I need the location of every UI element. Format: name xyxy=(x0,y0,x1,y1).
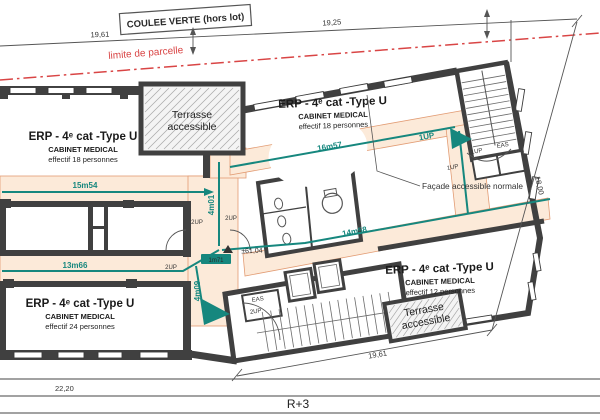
evac-dim-4m01: 4m01 xyxy=(207,194,216,215)
eas-room-bottom xyxy=(242,290,282,321)
column xyxy=(123,200,134,208)
column xyxy=(3,279,14,288)
windows-top-left xyxy=(10,88,112,94)
unit-tl-title: ERP - 4ᵉ cat -Type U xyxy=(29,131,138,143)
elevator-2 xyxy=(314,260,344,293)
terrace-top-line1: Terrasse xyxy=(172,109,212,121)
door-2up-b: 2UP xyxy=(225,216,237,222)
unit-tr-title: ERP - 4ᵉ cat -Type U xyxy=(278,95,387,111)
terrace-top: Terrasse accessible xyxy=(141,84,243,153)
dim-bottom-right: 19,61 xyxy=(368,348,388,360)
unit-bl-title: ERP - 4ᵉ cat -Type U xyxy=(26,298,135,310)
tick-arrow xyxy=(190,47,196,55)
title-band: 22,20 R+3 xyxy=(0,379,600,413)
rooms-middle-row xyxy=(0,199,191,257)
column xyxy=(126,279,137,288)
evac-dim-15m54: 15m54 xyxy=(73,181,98,190)
parcel-limit-label: limite de parcelle xyxy=(108,45,184,62)
unit-tl-category: CABINET MEDICAL xyxy=(48,145,118,154)
unit-top-left-label: ERP - 4ᵉ cat -Type U CABINET MEDICAL eff… xyxy=(29,131,138,164)
column xyxy=(0,199,11,208)
pilaster xyxy=(0,94,8,99)
unit-bl-occupancy: effectif 24 personnes xyxy=(45,322,115,331)
dimension-top: 19,61 19,25 xyxy=(0,9,577,62)
dim-line-top xyxy=(0,19,577,46)
wall-stub xyxy=(203,153,210,178)
dim-top-left: 19,61 xyxy=(90,30,109,40)
terrace-top-line2: accessible xyxy=(167,121,216,133)
evac-height-label: 1m71 xyxy=(208,258,224,264)
evac-dim-13m66: 13m66 xyxy=(63,261,88,270)
level-title: R+3 xyxy=(287,397,310,411)
unit-bl-category: CABINET MEDICAL xyxy=(45,312,115,321)
tick-arrow xyxy=(484,31,490,39)
dim-bottom-left: 22,20 xyxy=(55,384,74,393)
floor-plan-r3: limite de parcelle COULEE VERTE (hors lo… xyxy=(0,0,600,420)
pilaster xyxy=(120,94,128,99)
tick-arrow xyxy=(484,9,490,17)
door-2up-a: 2UP xyxy=(191,220,203,226)
dim-top-right: 19,25 xyxy=(322,17,341,27)
elevator-1 xyxy=(285,268,315,301)
level-altitude: ±61,04 xyxy=(241,248,263,256)
unit-br-occupancy: effectif 12 personnes xyxy=(405,286,475,297)
pilaster xyxy=(62,94,70,99)
facade-note-label: Façade accessible normale xyxy=(422,181,523,191)
unit-br-title: ERP - 4ᵉ cat -Type U xyxy=(385,261,494,277)
door-2up-c: 2UP xyxy=(165,265,177,271)
evac-dim-4m09: 4m09 xyxy=(193,280,202,301)
evac-exit-1up: 1UP xyxy=(418,131,436,143)
unit-tl-occupancy: effectif 18 personnes xyxy=(48,155,118,164)
facade-jog xyxy=(190,354,237,361)
coulee-verte-box: COULEE VERTE (hors lot) xyxy=(119,4,251,34)
